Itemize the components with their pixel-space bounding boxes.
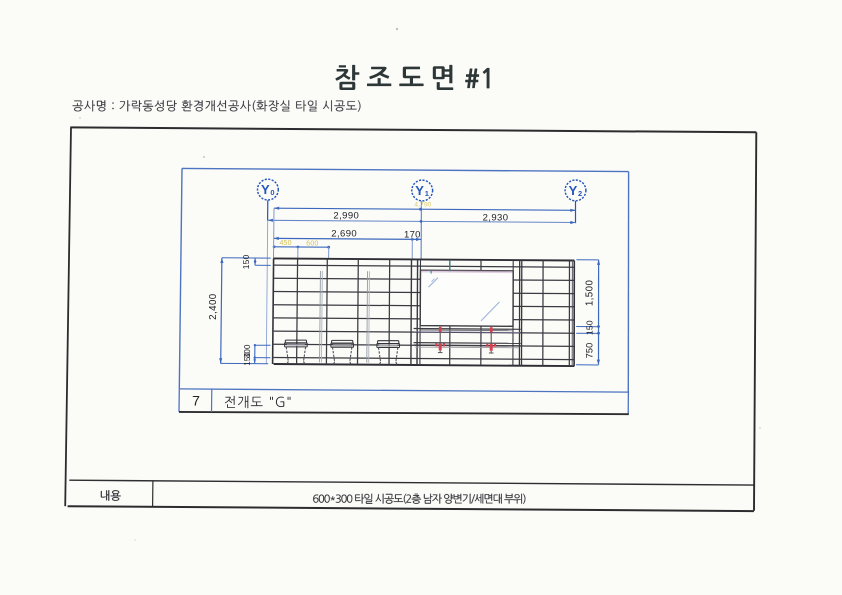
svg-text:2,990: 2,990: [333, 211, 359, 222]
svg-text:2,930: 2,930: [483, 212, 509, 223]
svg-text:1,500: 1,500: [585, 279, 596, 306]
svg-text:Y: Y: [261, 182, 270, 197]
svg-text:2,400: 2,400: [208, 293, 219, 320]
svg-text:1: 1: [425, 189, 429, 198]
svg-text:2: 2: [578, 189, 582, 198]
svg-text:150: 150: [584, 320, 594, 335]
svg-text:450: 450: [279, 240, 291, 247]
svg-text:600: 600: [306, 240, 318, 247]
svg-text:0: 0: [270, 188, 274, 197]
svg-text:2,690: 2,690: [331, 228, 357, 239]
svg-text:150: 150: [241, 254, 251, 269]
svg-text:Y: Y: [569, 183, 578, 198]
svg-text:Y: Y: [415, 183, 424, 198]
svg-text:750: 750: [584, 343, 594, 359]
svg-text:150: 150: [243, 352, 252, 366]
svg-text:4,790: 4,790: [414, 202, 431, 209]
svg-text:170: 170: [404, 229, 421, 240]
svg-text:7: 7: [192, 392, 200, 408]
